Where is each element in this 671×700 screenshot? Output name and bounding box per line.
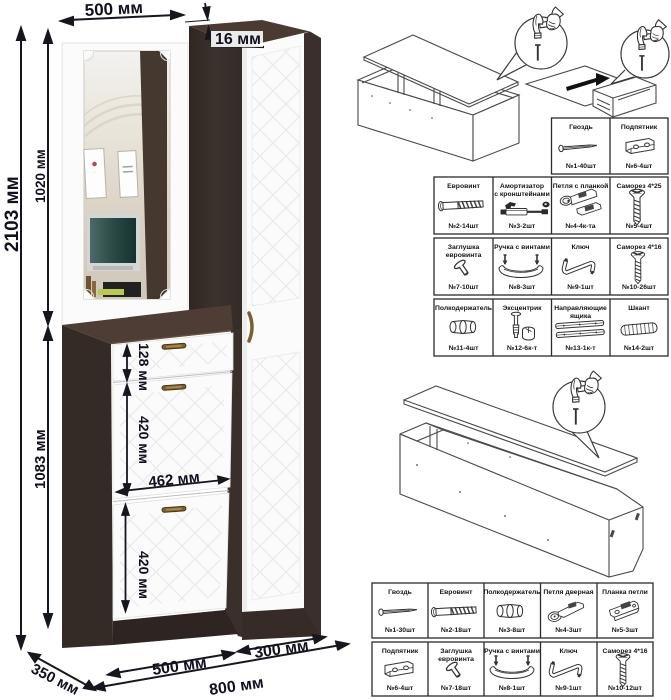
svg-text:№3-2шт: №3-2шт — [509, 223, 536, 230]
svg-text:Ключ: Ключ — [572, 244, 590, 251]
svg-text:№14-2шт: №14-2шт — [624, 345, 655, 352]
svg-text:с кронштейнами: с кронштейнами — [494, 190, 550, 198]
svg-text:№7-18шт: №7-18шт — [441, 685, 472, 692]
svg-text:Ключ: Ключ — [560, 648, 578, 655]
svg-text:№2-18шт: №2-18шт — [441, 627, 472, 634]
svg-text:ящика: ящика — [570, 313, 591, 320]
svg-text:16 мм: 16 мм — [215, 31, 261, 48]
svg-text:Заглушка: Заглушка — [448, 244, 480, 251]
svg-text:№9-1шт: №9-1шт — [567, 284, 594, 291]
svg-text:Петля дверная: Петля дверная — [543, 589, 593, 596]
svg-text:Планка петли: Планка петли — [602, 589, 648, 596]
svg-text:№11-4шт: №11-4шт — [449, 345, 479, 352]
svg-text:1020 мм: 1020 мм — [33, 149, 48, 203]
svg-text:Заглушка: Заглушка — [440, 648, 472, 655]
svg-text:500 мм: 500 мм — [84, 0, 143, 20]
svg-text:Гвоздь: Гвоздь — [569, 124, 593, 131]
svg-text:№6-4шт: №6-4шт — [387, 685, 414, 692]
svg-text:Шкант: Шкант — [628, 305, 650, 312]
svg-text:Амортизатор: Амортизатор — [500, 183, 544, 190]
svg-text:евровинта: евровинта — [446, 252, 482, 259]
svg-text:№5-3шт: №5-3шт — [612, 627, 639, 634]
svg-text:Евровинт: Евровинт — [440, 589, 473, 596]
svg-text:№12-6к-т: №12-6к-т — [507, 345, 538, 352]
svg-text:№10-12шт: №10-12шт — [608, 685, 643, 692]
svg-text:1083 мм: 1083 мм — [32, 429, 49, 489]
svg-text:420 мм: 420 мм — [136, 416, 152, 464]
svg-text:№4-3шт: №4-3шт — [555, 627, 582, 634]
svg-text:Ручка с винтами: Ручка с винтами — [494, 244, 550, 251]
svg-text:№6-4шт: №6-4шт — [626, 163, 653, 170]
svg-text:Саморез 4*16: Саморез 4*16 — [616, 244, 661, 251]
svg-text:Полкодержатель: Полкодержатель — [483, 589, 540, 596]
svg-text:№1-30шт: №1-30шт — [385, 627, 416, 634]
svg-text:Евровинт: Евровинт — [447, 183, 480, 190]
svg-text:Петля с планкой: Петля с планкой — [553, 182, 609, 190]
svg-text:Подпятник: Подпятник — [621, 124, 658, 131]
svg-text:128 мм: 128 мм — [136, 343, 152, 391]
svg-text:№5-4шт: №5-4шт — [626, 223, 653, 230]
svg-text:Ручка с винтами: Ручка с винтами — [484, 648, 540, 655]
svg-text:Полкодержатель: Полкодержатель — [435, 305, 492, 312]
svg-text:№1-40шт: №1-40шт — [566, 163, 597, 170]
svg-text:№13-1к-т: №13-1к-т — [565, 345, 596, 352]
svg-text:№8-1шт: №8-1шт — [499, 685, 526, 692]
svg-text:420 мм: 420 мм — [136, 551, 152, 599]
svg-text:Гвоздь: Гвоздь — [388, 589, 412, 596]
svg-text:№2-14шт: №2-14шт — [448, 223, 479, 230]
svg-text:№10-26шт: №10-26шт — [622, 284, 657, 291]
svg-text:№3-8шт: №3-8шт — [499, 627, 526, 634]
svg-text:Эксцентрик: Эксцентрик — [502, 305, 542, 312]
svg-text:Подпятник: Подпятник — [382, 648, 419, 655]
svg-text:№8-3шт: №8-3шт — [509, 284, 536, 291]
svg-text:Направляющие: Направляющие — [554, 305, 607, 312]
svg-text:№7-10шт: №7-10шт — [448, 284, 479, 291]
svg-text:№4-4к-та: №4-4к-та — [565, 223, 595, 230]
svg-text:№9-1шт: №9-1шт — [555, 685, 582, 692]
svg-text:2103 мм: 2103 мм — [2, 176, 23, 252]
